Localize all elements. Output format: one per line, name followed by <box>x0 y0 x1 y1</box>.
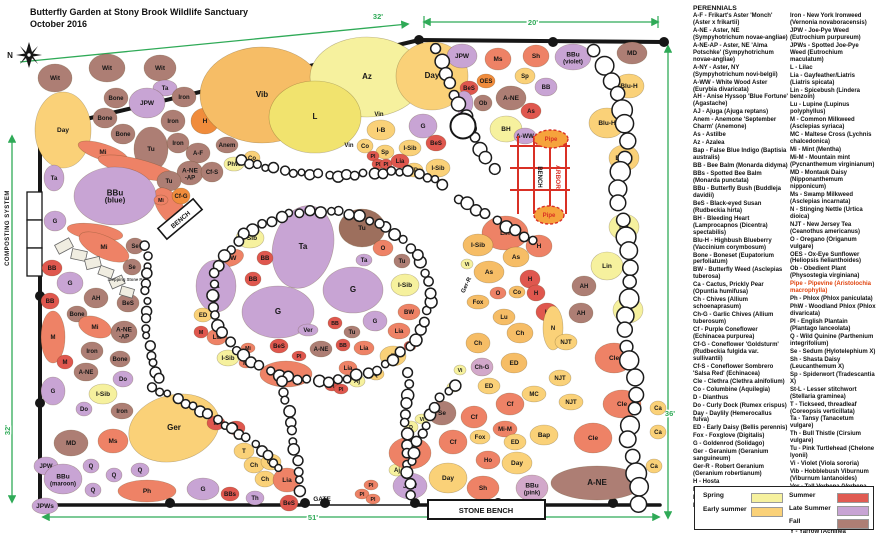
stone <box>493 216 501 224</box>
plant-label: BB <box>339 343 347 349</box>
plant-label: Ta <box>162 86 169 92</box>
stone <box>620 133 636 149</box>
plant-label: Q <box>138 468 143 474</box>
plant-label: Ta <box>361 258 368 264</box>
plant-label: Ca <box>654 406 662 412</box>
plant-label: BB <box>542 85 551 91</box>
stone <box>620 351 639 370</box>
stone <box>364 368 374 378</box>
plant-label: BeS <box>122 301 134 307</box>
legend-item: BeS - Black-eyed Susan (Rudbeckia hirta) <box>693 201 788 215</box>
stone <box>277 376 287 386</box>
legend-item: Cf-S - Coneflower Sombrero 'Salsa Red' (… <box>693 364 788 378</box>
legend-item: Iron - New York Ironweed (Vernonia novab… <box>790 13 876 27</box>
legend-item: BBu - Butterfly Bush (Buddleja davidii) <box>693 186 788 200</box>
plant-label2: -AP <box>119 335 129 341</box>
stone <box>263 450 272 459</box>
stone <box>529 236 537 244</box>
plant-label: I-Sib <box>398 282 412 289</box>
plant-label: Sp <box>381 150 389 156</box>
plant-label: BBu <box>56 474 69 481</box>
plant-label: I-Sib <box>96 391 110 398</box>
stone <box>154 373 164 383</box>
plant-label: Ger-R <box>461 276 474 294</box>
legend-item: As - Astilbe <box>693 132 788 139</box>
season-label: Summer <box>789 492 815 499</box>
season-swatch <box>751 507 783 517</box>
stone <box>277 212 288 223</box>
plant-label: Ms <box>108 438 117 445</box>
season-legend: SpringEarly summerSummerLate SummerFall <box>694 486 874 530</box>
stone <box>420 317 430 327</box>
legend-item: Sh - Shasta Daisy (Leucanthemum X) <box>790 357 876 371</box>
plant-label: M <box>63 360 68 366</box>
stone <box>258 220 266 228</box>
plant-label2: (maroon) <box>50 482 76 488</box>
legend-item: Se - Sedum (Hylotelephium X) <box>790 349 876 356</box>
plant-label: As <box>527 109 535 115</box>
plant-label: Pl <box>339 387 344 393</box>
plant-label: Pl <box>360 492 365 498</box>
plant-label: Bap <box>538 432 550 439</box>
fence-post <box>165 498 175 508</box>
plant-label: Pl <box>371 154 376 160</box>
stone <box>142 314 151 323</box>
plant-label: I-B <box>377 127 386 134</box>
plant-label: BeS <box>430 141 442 147</box>
plant-label: BW <box>404 310 414 316</box>
stone <box>489 164 500 175</box>
legend-item: Ger - Geranium (Geranium sanguineum) <box>693 449 788 463</box>
stone <box>164 390 170 396</box>
plant-label: Cle <box>609 355 620 362</box>
legend-item: M - Common Milkweed (Asclepias syriaca) <box>790 117 876 131</box>
plant-label: Mi <box>91 324 98 331</box>
plant-label: Vi <box>465 262 470 268</box>
plant-label: Pl <box>297 354 302 360</box>
stone <box>140 241 149 250</box>
stone <box>444 77 455 88</box>
page-title: Butterfly Garden at Stony Brook Wildlife… <box>30 7 248 17</box>
legend-item: A-NE-AP - Aster, NE 'Alma Potschke' (Sym… <box>693 43 788 64</box>
plant-label: Th <box>251 496 259 502</box>
plant-label: Se <box>128 265 136 271</box>
stone <box>351 369 362 380</box>
plant-label: BB <box>46 299 55 305</box>
plant-label: Bone <box>113 357 129 363</box>
legend-item: NJT - New Jersey Tea (Ceanothus american… <box>790 222 876 236</box>
plant-label: O <box>381 246 386 252</box>
stone <box>293 456 303 466</box>
stone <box>145 341 155 351</box>
stone <box>437 180 447 190</box>
dimension-label: 32' <box>3 425 12 435</box>
plant-label: Ch <box>474 341 482 347</box>
plant-label: Lia <box>360 346 369 352</box>
stone <box>156 388 164 396</box>
stone <box>401 467 413 479</box>
stone <box>142 325 150 333</box>
stone <box>423 174 431 182</box>
plant-label: Tu <box>147 146 154 153</box>
season-label: Fall <box>789 518 800 525</box>
plant-label: JPW <box>140 100 155 107</box>
stone <box>203 409 213 419</box>
plant-label: G <box>350 285 356 294</box>
legend-item: Day - Daylily (Hemerocallus fulva) <box>693 411 788 425</box>
stone <box>406 244 415 253</box>
stone <box>279 388 288 397</box>
stone <box>435 54 449 68</box>
legend-item: St-L - Lesser stitchwort (Stellaria gram… <box>790 387 876 401</box>
legend-item: Mi-M - Mountain mint (Pycnanthemum virgi… <box>790 155 876 169</box>
plant-label: Fox <box>475 435 486 441</box>
legend-item: Ph - Phlox (Phlox paniculata) <box>790 296 876 303</box>
plant-label: Ch <box>261 477 269 483</box>
stone <box>424 277 433 286</box>
plant-label: MC <box>529 392 539 398</box>
season-swatch <box>837 506 869 516</box>
stone <box>410 334 422 346</box>
plant-label2: -AP <box>185 176 195 182</box>
stone <box>401 398 412 409</box>
plant-label: Do <box>119 377 127 383</box>
stone <box>289 170 297 178</box>
season-label: Late Summer <box>789 505 831 512</box>
stone <box>627 369 644 386</box>
plant-label: Ph <box>143 488 151 495</box>
stone <box>143 332 149 338</box>
stone <box>617 322 632 337</box>
legend-item: Tu - Pink Turtlehead (Chelone lyonii) <box>790 446 876 460</box>
plant-label: MD <box>627 50 637 57</box>
plant-label2: (pink) <box>524 491 540 497</box>
stone <box>425 288 436 299</box>
plant-label: BB <box>261 256 270 262</box>
fence-post <box>659 37 669 47</box>
plant-label: M <box>51 335 56 341</box>
plant-label: T <box>242 449 246 455</box>
legend-item: N - Stinging Nettle (Urtica dioica) <box>790 207 876 221</box>
plant-label: BB <box>48 266 57 272</box>
fence-post <box>548 37 558 47</box>
legend-item: PhW - Woodland Phlox (Phlox divaricata) <box>790 304 876 318</box>
legend-item: Lin - Spicebush (Lindera benzoin) <box>790 88 876 102</box>
plant-label: Ger <box>167 423 181 432</box>
plant-label: BBs <box>224 492 237 498</box>
stone <box>619 431 635 447</box>
legend-item: MC - Maltese Cross (Lychnis chalcedonica… <box>790 132 876 146</box>
legend-item: H - Hosta <box>693 479 788 486</box>
plant-label: BeS <box>273 344 285 350</box>
plant-legend-col1: A-F - Frikart's Aster 'Monch' (Aster x f… <box>693 13 788 511</box>
plant-label: Az <box>362 72 372 81</box>
stone <box>479 151 491 163</box>
stone <box>587 44 599 56</box>
plant-label: Q <box>91 488 96 494</box>
stone <box>253 160 261 168</box>
plant-label: N <box>551 326 555 332</box>
plant-label: M <box>199 330 203 336</box>
stone <box>296 476 303 483</box>
stone <box>615 115 633 133</box>
plant-label: Fox <box>473 300 484 306</box>
legend-item: BB - Bee Balm (Monarda didyma) <box>693 163 788 170</box>
stone <box>630 496 646 512</box>
stone <box>303 375 311 383</box>
stone <box>267 217 277 227</box>
plant-label: OES <box>480 79 493 85</box>
stone <box>405 380 413 388</box>
stone <box>281 166 290 175</box>
plant-label: NJT <box>565 400 577 406</box>
legend-item: Blu-H - Highbush Blueberry (Vaccinium co… <box>693 238 788 252</box>
plant-label: BBu <box>566 52 579 59</box>
legend-item: Bap - False Blue Indigo (Baptisia austra… <box>693 148 788 162</box>
stone <box>294 468 303 477</box>
legend-item: Vib - Hobblebush Viburnum (Viburnum lant… <box>790 469 876 483</box>
plant-label: L <box>313 112 318 121</box>
plant-label: G <box>51 389 56 395</box>
stone <box>389 229 401 241</box>
dimension-label: 20' <box>528 18 538 27</box>
season-swatch <box>751 493 783 503</box>
stone <box>142 268 152 278</box>
legend-item: JPWs - Spotted Joe-Pye Weed (Eutrochium … <box>790 43 876 64</box>
compost-bin <box>27 248 42 276</box>
plant-label: AH <box>92 296 101 302</box>
plant-label: Tu <box>399 259 406 265</box>
plant-label: Blu-H <box>598 120 616 127</box>
season-swatch <box>837 493 869 503</box>
stone <box>324 377 334 387</box>
stone <box>406 491 415 500</box>
plant-label: Co <box>513 290 521 296</box>
plant-label: H <box>203 118 208 125</box>
stone <box>401 418 409 426</box>
legend-item: BBs - Spotted Bee Balm (Monarda punctata… <box>693 171 788 185</box>
plant-label: G <box>373 319 378 325</box>
legend-item: AH - Anise Hyssop 'Blue Fortune' (Agasta… <box>693 94 788 108</box>
plant-label: Wit <box>102 65 113 72</box>
arbor-label: ARBOR <box>554 165 561 189</box>
plant-label: BB <box>331 321 339 327</box>
stone <box>450 380 461 391</box>
plant-label: Day <box>57 127 69 134</box>
plant-label: Sh <box>479 485 487 492</box>
legend-item: A-F - Frikart's Aster 'Monch' (Aster x f… <box>693 13 788 27</box>
stone <box>480 209 490 219</box>
stone <box>510 225 521 236</box>
legend-item: O - Oregano (Origanum vulgare) <box>790 237 876 251</box>
plant-label: Bone <box>98 116 114 122</box>
plant-label: Tu <box>349 330 356 336</box>
gate-label: GATE <box>313 496 331 503</box>
plant-label: G <box>67 280 72 287</box>
pipe-label: Pipe <box>543 213 556 219</box>
legend-item: G - Goldenrod (Solidago) <box>693 441 788 448</box>
plant-label: I-Sib <box>404 146 417 152</box>
plant-label: A-NE <box>587 478 607 487</box>
stone <box>294 486 305 497</box>
stone-bench-label: STONE BENCH <box>459 506 513 515</box>
plant-label: AH <box>577 311 586 317</box>
dimension-label: 32' <box>373 12 383 21</box>
legend-item: OES - Ox-Eye Sunflower (Heliopsis helian… <box>790 252 876 266</box>
plant-label: I-Sib <box>222 356 235 362</box>
plant-label: JPWs <box>36 503 54 510</box>
stone <box>610 195 626 211</box>
arbor-bench-label: BENCH <box>536 166 542 187</box>
stone <box>403 368 413 378</box>
plant-label: Cf <box>507 401 515 408</box>
stone <box>141 287 149 295</box>
stone <box>214 415 222 423</box>
plant-label: Iron <box>86 349 98 355</box>
plant-label: Wit <box>155 65 166 72</box>
plant-label: Q <box>112 473 117 479</box>
stone <box>619 289 638 308</box>
plant-label: Tu <box>166 179 173 185</box>
compass-n-label: N <box>7 51 13 60</box>
stone <box>519 232 528 241</box>
stone <box>359 169 366 176</box>
stone <box>219 250 231 262</box>
legend-item: Lu - Lupine (Lupinus polyphyllus) <box>790 102 876 116</box>
stone <box>421 269 429 277</box>
legend-item: Cf-G - Coneflower 'Goldsturm' (Rudbeckia… <box>693 342 788 363</box>
legend-item: T - Tickseed, threadleaf (Coreopsis vert… <box>790 402 876 416</box>
plant-label: Bone <box>109 96 125 102</box>
legend-item: L - Lilac <box>790 65 876 72</box>
plant-label: ED <box>511 440 520 446</box>
stone <box>405 479 415 489</box>
plant-label: A-NE <box>116 327 133 334</box>
plant-label: AH <box>580 284 589 290</box>
legend-item: Ger-R - Robert Geranium (Geranium robert… <box>693 464 788 478</box>
legend-item: A-WW - White Wood Aster (Eurybia divaric… <box>693 80 788 94</box>
plant-label: Ms <box>493 56 502 63</box>
stone <box>305 206 315 216</box>
stone <box>245 159 254 168</box>
stone <box>144 298 151 305</box>
plant-label: Lia <box>395 329 404 335</box>
plant-label: Vin <box>344 143 354 149</box>
legend-item: Vi - Violet (Viola sororia) <box>790 461 876 468</box>
plant-label: Ob <box>479 101 488 107</box>
plant-label: H <box>537 243 542 250</box>
legend-item: Ch - Chives (Allium schoenaprasum) <box>693 297 788 311</box>
plant-label: Iron <box>172 141 184 147</box>
stone <box>207 290 219 302</box>
stone <box>226 337 235 346</box>
plant-label: Mi <box>158 198 164 204</box>
plant-label: BeS <box>283 501 295 507</box>
season-label: Spring <box>703 492 724 499</box>
plant-label: Wit <box>50 75 61 82</box>
legend-item: Co - Columbine (Aquilegia) <box>693 387 788 394</box>
plant-label: Co <box>361 144 369 150</box>
plant-label: Se <box>438 410 446 417</box>
plant-label: Ca <box>654 430 662 436</box>
stone <box>314 169 323 178</box>
legend-item: D - Dianthus <box>693 395 788 402</box>
plant-label: NJT <box>560 340 572 346</box>
stone <box>287 426 296 435</box>
stone <box>344 210 354 220</box>
legend-item: Ms - Swamp Milkweed (Asclepias incarnata… <box>790 192 876 206</box>
legend-item: Pl - English Plantain (Plantago lanceola… <box>790 319 876 333</box>
plant-label: Cf-G <box>175 194 188 200</box>
plant-label: Tu <box>358 225 365 232</box>
stone <box>281 396 289 404</box>
plant-label: I-Sib <box>471 242 485 249</box>
stepping-stone <box>85 256 102 269</box>
stone <box>328 208 335 215</box>
season-label: Early summer <box>703 506 747 513</box>
stone <box>298 169 305 176</box>
stone <box>210 268 219 277</box>
stone <box>630 478 648 496</box>
legend-item: JPW - Joe-Pye Weed (Eutrochium purpureum… <box>790 28 876 42</box>
stone <box>431 44 441 54</box>
legend-item: Th - Bull Thistle (Cirsium vulgare) <box>790 431 876 445</box>
stone <box>268 163 278 173</box>
stone <box>395 347 405 357</box>
legend-item: Cle - Clethra (Clethra alnifolium) <box>693 379 788 386</box>
plant-label: BB <box>249 277 258 283</box>
plant-label: Cf-S <box>206 170 218 176</box>
tree-circle <box>451 114 476 139</box>
stone <box>387 167 395 175</box>
plant-label: ED <box>199 313 208 319</box>
legend-item: Q - Wild Quinine (Parthenium integrifoli… <box>790 334 876 348</box>
plant-label: ED <box>509 360 518 367</box>
stone <box>295 209 304 218</box>
stone <box>148 383 157 392</box>
legend-item: BW - Butterfly Weed (Asclepias tuberosa) <box>693 267 788 281</box>
dimension-label: 51' <box>308 513 318 522</box>
legend-item: Cf - Purple Coneflower (Echinacea purpur… <box>693 327 788 341</box>
plant-label: A-NE <box>314 347 329 353</box>
stone <box>617 213 630 226</box>
legend-item: ED - Early Daisy (Bellis perennis) <box>693 425 788 432</box>
legend-item: Az - Azalea <box>693 140 788 147</box>
legend-heading: PERENNIALS <box>693 5 737 12</box>
plant-label: Sh <box>532 53 540 60</box>
stone <box>354 210 365 221</box>
plant-label: Vib <box>256 90 268 99</box>
plant-label: G <box>200 486 205 493</box>
plant-label: Lin <box>602 263 612 270</box>
stone <box>408 447 420 459</box>
plant-label: I-Sib <box>432 166 445 172</box>
stone <box>403 166 414 177</box>
plant-label: G <box>275 307 281 316</box>
stone <box>626 449 640 463</box>
pipe-label: Pipe <box>545 137 558 143</box>
plant-label: Day <box>511 460 523 467</box>
legend-item: Bone - Boneset (Eupatorium perfoliatum) <box>693 253 788 267</box>
stone <box>211 280 219 288</box>
plant-label: Mi <box>100 244 107 251</box>
plant-label: Iron <box>167 119 179 125</box>
plant-label: Day <box>425 71 440 80</box>
stone <box>315 207 326 218</box>
plant-label: Sp <box>521 74 529 80</box>
stone <box>375 219 384 228</box>
plant-label: O <box>496 291 501 297</box>
